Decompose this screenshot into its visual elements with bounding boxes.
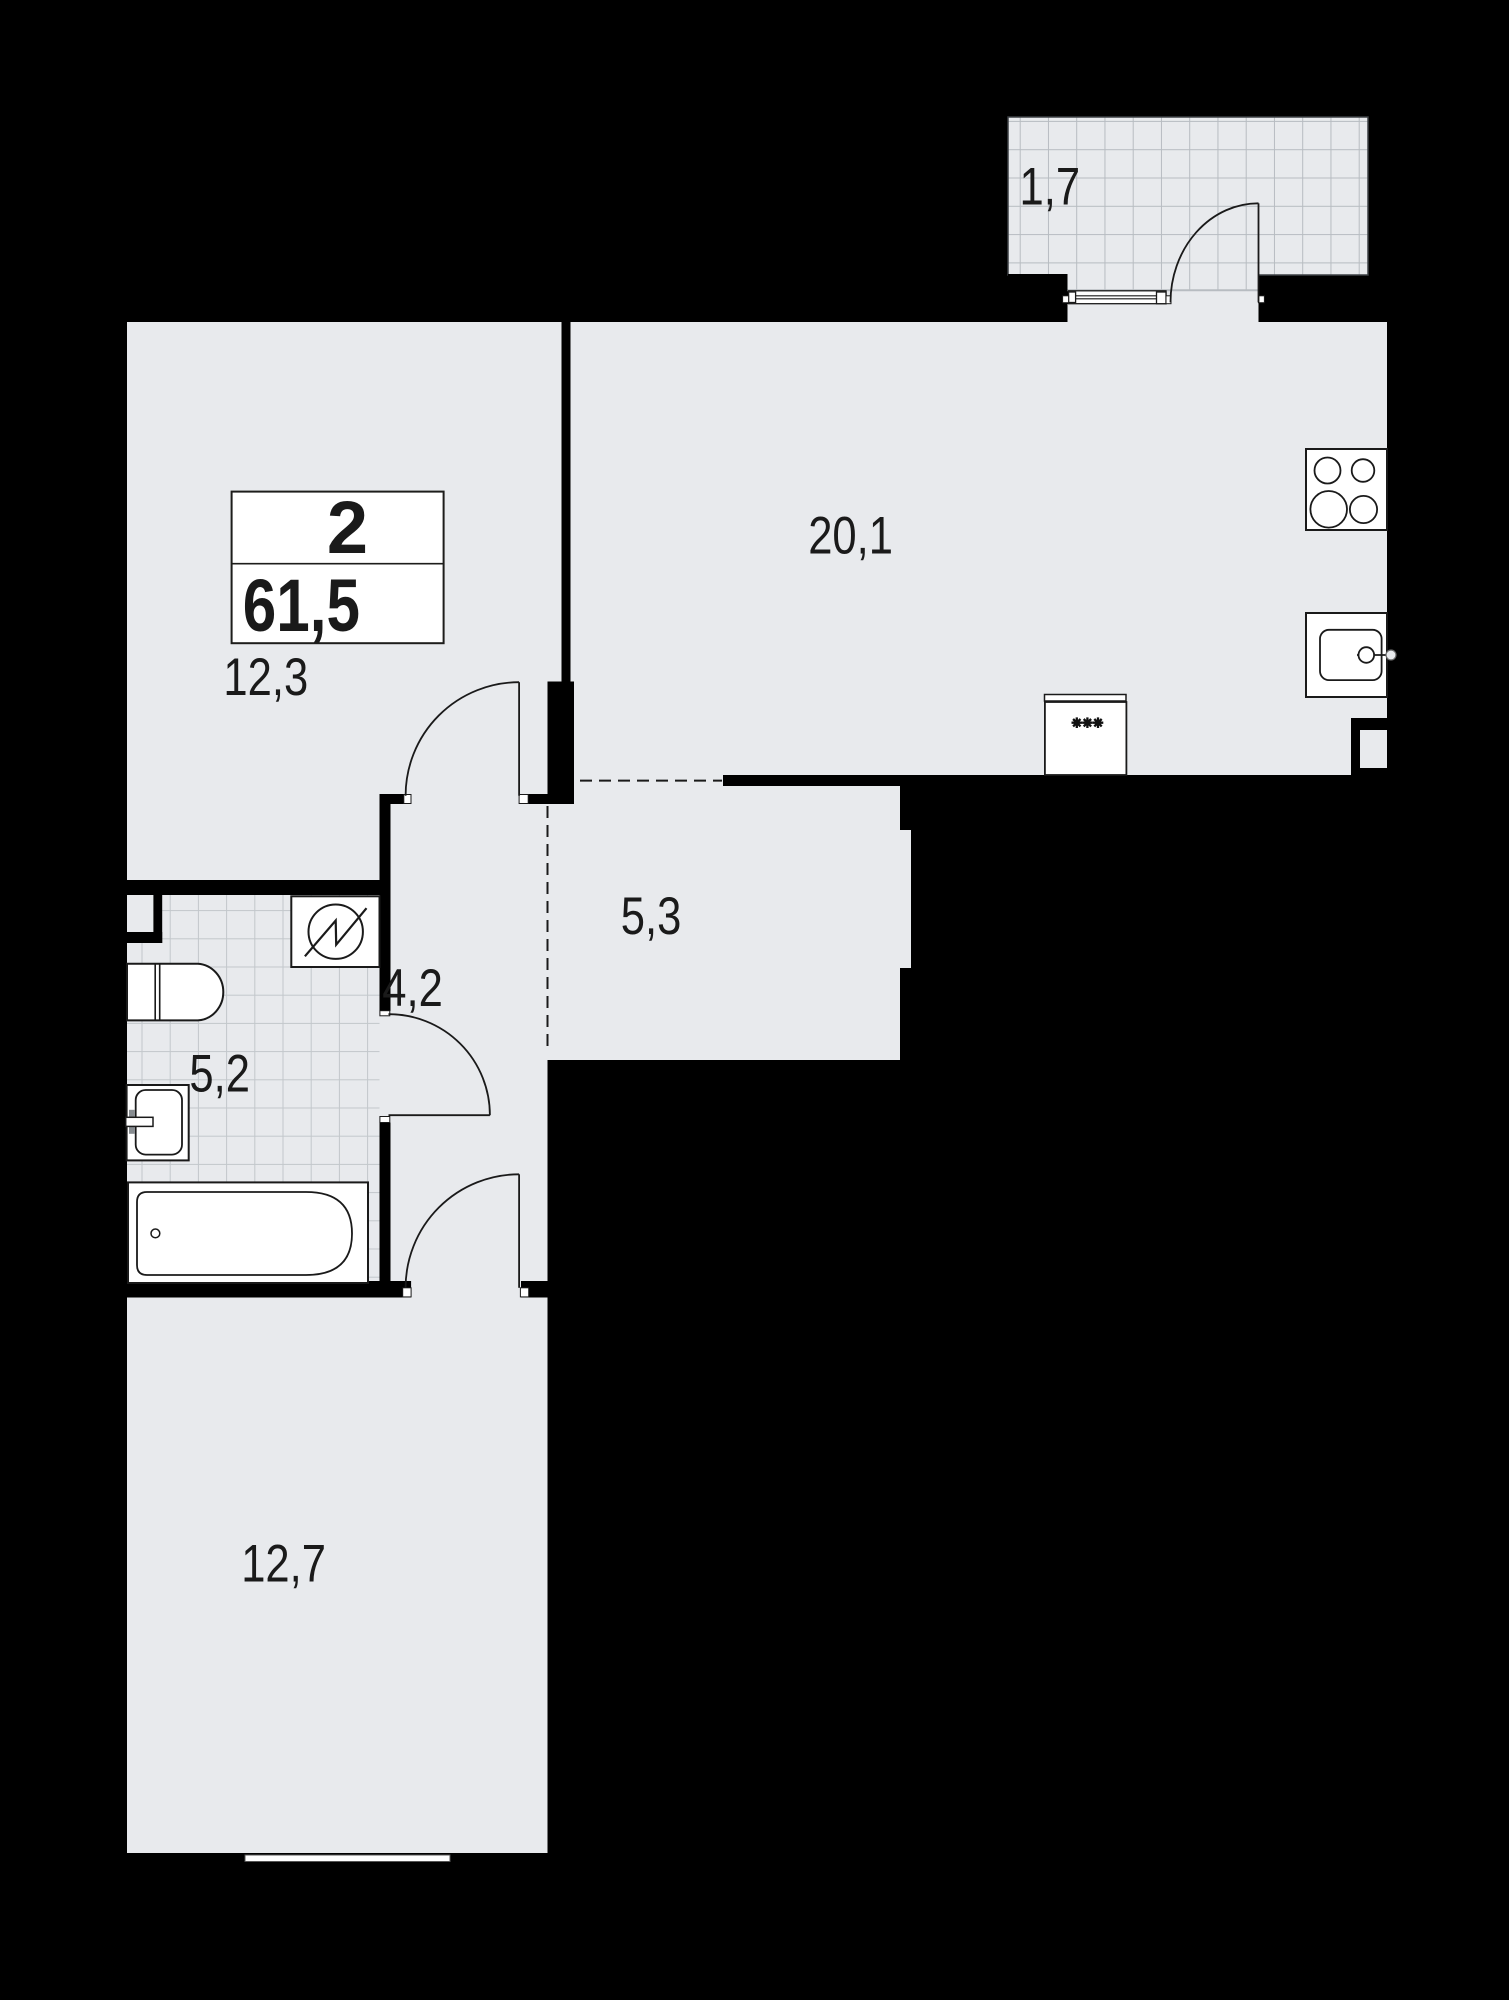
- svg-text:2: 2: [327, 486, 368, 569]
- svg-text:61,5: 61,5: [243, 565, 360, 647]
- svg-text:5,3: 5,3: [621, 887, 682, 946]
- svg-text:20,1: 20,1: [808, 507, 893, 566]
- svg-text:5,2: 5,2: [189, 1045, 250, 1104]
- svg-text:4,2: 4,2: [382, 959, 443, 1018]
- svg-text:1,7: 1,7: [1020, 158, 1081, 217]
- svg-text:12,3: 12,3: [223, 648, 308, 707]
- svg-text:12,7: 12,7: [241, 1535, 326, 1594]
